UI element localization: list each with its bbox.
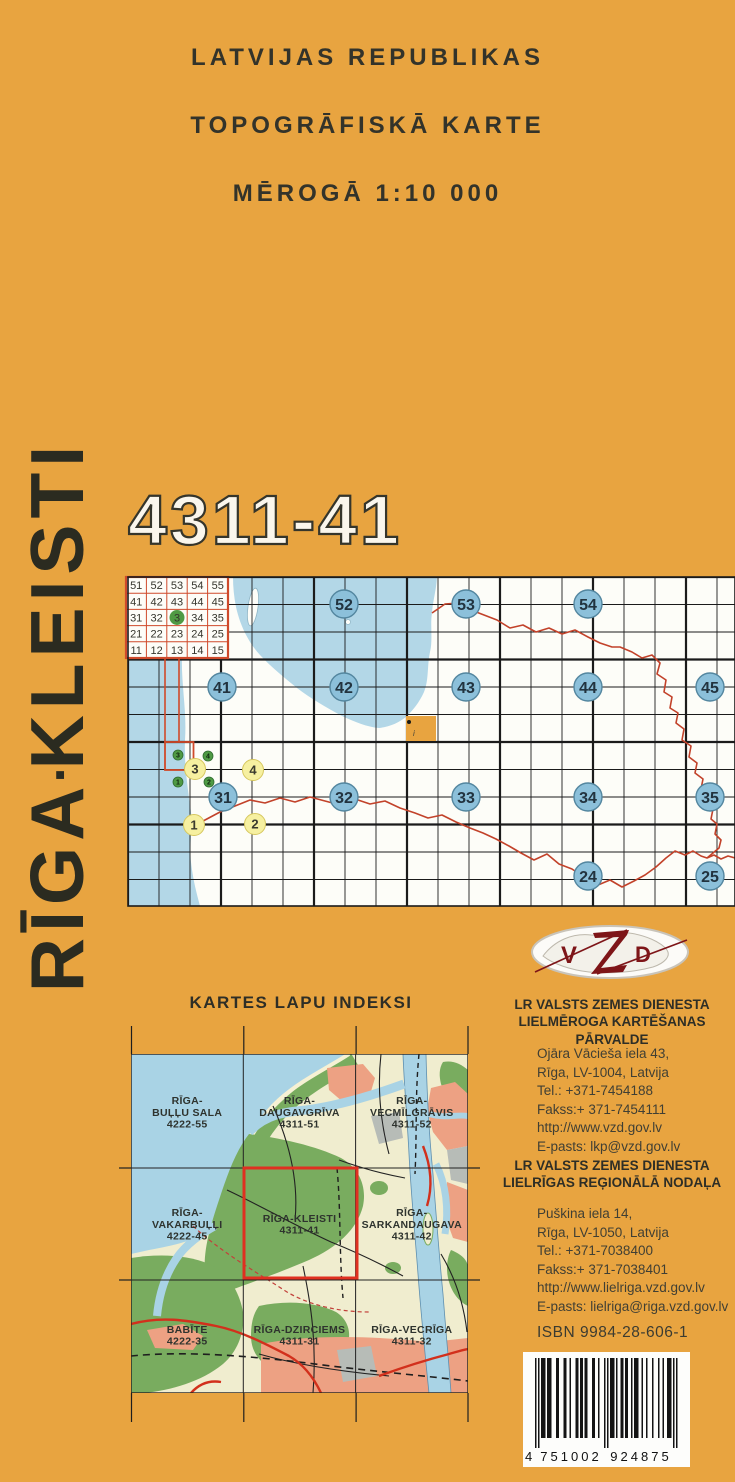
- riga-dot: [407, 720, 411, 724]
- org2-address-line: Fakss:+ 371-7038401: [537, 1261, 735, 1280]
- sheet-label: 4311-52: [392, 1118, 432, 1130]
- isbn-number: ISBN 9984-28-606-1: [537, 1324, 688, 1342]
- table-cell-number: 12: [150, 645, 162, 657]
- current-sheet-label: 4311-41: [279, 1225, 319, 1237]
- current-sheet-label: RĪGA-KLEISTI: [263, 1213, 337, 1225]
- latvia-index-map: i 52535441424344453132333435242534123412…: [124, 575, 735, 908]
- forest: [370, 1181, 388, 1195]
- vzd-logo: V D: [515, 920, 705, 986]
- sheet-label: VECMĪLGRĀVIS: [370, 1107, 454, 1119]
- sheet-label: 4311-31: [279, 1336, 319, 1348]
- table-cell-number: 45: [212, 596, 224, 608]
- blue-sheet-number: 41: [213, 680, 231, 697]
- sheet-label: 4222-55: [167, 1118, 208, 1130]
- table-cell-number: 51: [130, 580, 142, 592]
- sheet-label: SARKANDAUGAVA: [362, 1219, 462, 1231]
- sheet-label: BUĻĻU SALA: [152, 1107, 222, 1119]
- table-cell-number: 54: [191, 580, 203, 592]
- org1-address: Ojāra Vācieša iela 43, Rīga, LV-1004, La…: [537, 1045, 735, 1156]
- barcode-group1: 751002: [540, 1449, 601, 1464]
- table-cell-number: 53: [171, 580, 183, 592]
- sheet-label: BABĪTE: [167, 1324, 208, 1336]
- table-cell-number: 31: [130, 613, 142, 625]
- table-cell-number: 32: [150, 613, 162, 625]
- green-sheet-number: 2: [207, 780, 211, 787]
- map-cover: LATVIJAS REPUBLIKAS TOPOGRĀFISKĀ KARTE M…: [0, 0, 735, 1482]
- org1-address-line: Tel.: +371-7454188: [537, 1082, 735, 1101]
- org2-address-line: E-pasts: lielriga@riga.vzd.gov.lv: [537, 1298, 735, 1317]
- blue-sheet-number: 44: [579, 680, 597, 697]
- table-cell-number: 23: [171, 629, 183, 641]
- table-cell-number: 24: [191, 629, 203, 641]
- barcode-group2: 924875: [610, 1449, 671, 1464]
- green-sheet-number: 1: [176, 780, 180, 787]
- riga-city-marker: [406, 716, 436, 741]
- blue-sheet-number: 33: [457, 790, 475, 807]
- blue-sheet-number: 31: [214, 790, 232, 807]
- org2-address-line: Tel.: +371-7038400: [537, 1242, 735, 1261]
- table-cell-number: 41: [130, 596, 142, 608]
- title-line-2: TOPOGRĀFISKĀ KARTE: [0, 112, 735, 140]
- logo-letter-v: V: [561, 942, 577, 969]
- org2-name-line2: LIELRĪGAS REĢIONĀLĀ NODAĻA: [488, 1174, 735, 1192]
- riga-italic-mark: i: [413, 729, 415, 738]
- yellow-sheet-number: 1: [190, 818, 197, 833]
- green-sheet-number: 4: [206, 754, 210, 761]
- org1-address-line: Fakss:+ 371-7454111: [537, 1101, 735, 1120]
- blue-sheet-number: 25: [701, 869, 719, 886]
- sheet-label: 4222-35: [167, 1336, 208, 1348]
- blue-sheet-number: 42: [335, 680, 353, 697]
- table-cell-number: 13: [171, 645, 183, 657]
- blue-sheet-number: 52: [335, 597, 353, 614]
- blue-sheet-number: 43: [457, 680, 475, 697]
- sheet-code: 4311-41: [128, 480, 402, 560]
- table-cell-number: 42: [150, 596, 162, 608]
- yellow-sheet-number: 4: [249, 763, 257, 778]
- sheet-label: RĪGA-: [284, 1095, 315, 1107]
- sheet-label: 4311-42: [392, 1230, 432, 1242]
- blue-sheet-number: 34: [579, 790, 597, 807]
- sheet-label: RĪGA-DZIRCIEMS: [254, 1324, 346, 1336]
- logo-letter-d: D: [635, 942, 651, 967]
- table-cell-number: 21: [130, 629, 142, 641]
- org2-address-line: http://www.lielriga.vzd.gov.lv: [537, 1279, 735, 1298]
- sheet-label: 4311-32: [392, 1336, 432, 1348]
- sheet-label: RĪGA-VECRĪGA: [371, 1324, 452, 1336]
- table-cell-number: 22: [150, 629, 162, 641]
- blue-sheet-number: 54: [579, 597, 597, 614]
- industrial-area: [337, 1346, 377, 1382]
- blue-sheet-number: 45: [701, 680, 719, 697]
- sheet-label: DAUGAVGRĪVA: [259, 1107, 340, 1119]
- table-cell-number: 15: [212, 645, 224, 657]
- sheet-label: 4311-51: [279, 1118, 319, 1130]
- blue-sheet-number: 24: [579, 869, 597, 886]
- org1-address-line: Rīga, LV-1004, Latvija: [537, 1064, 735, 1083]
- table-cell-number: 35: [212, 613, 224, 625]
- table-cell-number: 52: [150, 580, 162, 592]
- org2-address-line: Rīga, LV-1050, Latvija: [537, 1224, 735, 1243]
- title-line-3: MĒROGĀ 1:10 000: [0, 180, 735, 208]
- table-cell-number: 43: [171, 596, 183, 608]
- org2-address: Puškina iela 14, Rīga, LV-1050, Latvija …: [537, 1205, 735, 1316]
- sheet-label: VAKARBUĻĻI: [152, 1219, 222, 1231]
- blue-sheet-number: 32: [335, 790, 353, 807]
- blue-sheet-number: 35: [701, 790, 719, 807]
- side-title-separator: ▪: [41, 769, 77, 780]
- sheet-label: RĪGA-: [172, 1207, 203, 1219]
- sheet-label: 4222-45: [167, 1230, 208, 1242]
- org1-address-line: http://www.vzd.gov.lv: [537, 1119, 735, 1138]
- table-cell-number: 11: [130, 645, 141, 657]
- side-title-part1: RĪGA: [15, 781, 99, 993]
- table-cell-number: 55: [212, 580, 224, 592]
- small-island: [346, 620, 351, 625]
- blue-sheet-number: 53: [457, 597, 475, 614]
- sheet-label: RĪGA-: [396, 1207, 427, 1219]
- sheet-label: RĪGA-: [396, 1095, 427, 1107]
- table-cell-number: 34: [191, 613, 203, 625]
- table-cell-number: 3: [174, 613, 180, 625]
- org2-address-line: Puškina iela 14,: [537, 1205, 735, 1224]
- sheet-numbering-table: 5152535455414243444531323343521222324251…: [126, 577, 228, 658]
- sheet-index-map: RĪGA-BUĻĻU SALA4222-55RĪGA-DAUGAVGRĪVA43…: [119, 1026, 480, 1428]
- org1-address-line: Ojāra Vācieša iela 43,: [537, 1045, 735, 1064]
- org1-address-line: E-pasts: lkp@vzd.gov.lv: [537, 1138, 735, 1157]
- ean-barcode: 4 751002 924875: [523, 1352, 690, 1467]
- yellow-sheet-number: 3: [191, 762, 198, 777]
- org1-name-line2: LIELMĒROGA KARTĒŠANAS PĀRVALDE: [488, 1013, 735, 1048]
- table-cell-number: 14: [191, 645, 203, 657]
- sheet-index-title: KARTES LAPU INDEKSI: [131, 993, 471, 1013]
- sheet-label: RĪGA-: [172, 1095, 203, 1107]
- side-title-part2: KLEISTI: [15, 440, 99, 770]
- table-cell-number: 44: [191, 596, 203, 608]
- table-cell-number: 25: [212, 629, 224, 641]
- barcode-lead-digit: 4: [525, 1449, 532, 1464]
- title-line-1: LATVIJAS REPUBLIKAS: [0, 44, 735, 72]
- org2-name-line1: LR VALSTS ZEMES DIENESTA: [488, 1157, 735, 1175]
- yellow-sheet-number: 2: [251, 817, 258, 832]
- org1-name-line1: LR VALSTS ZEMES DIENESTA: [488, 996, 735, 1014]
- green-sheet-number: 3: [176, 753, 180, 760]
